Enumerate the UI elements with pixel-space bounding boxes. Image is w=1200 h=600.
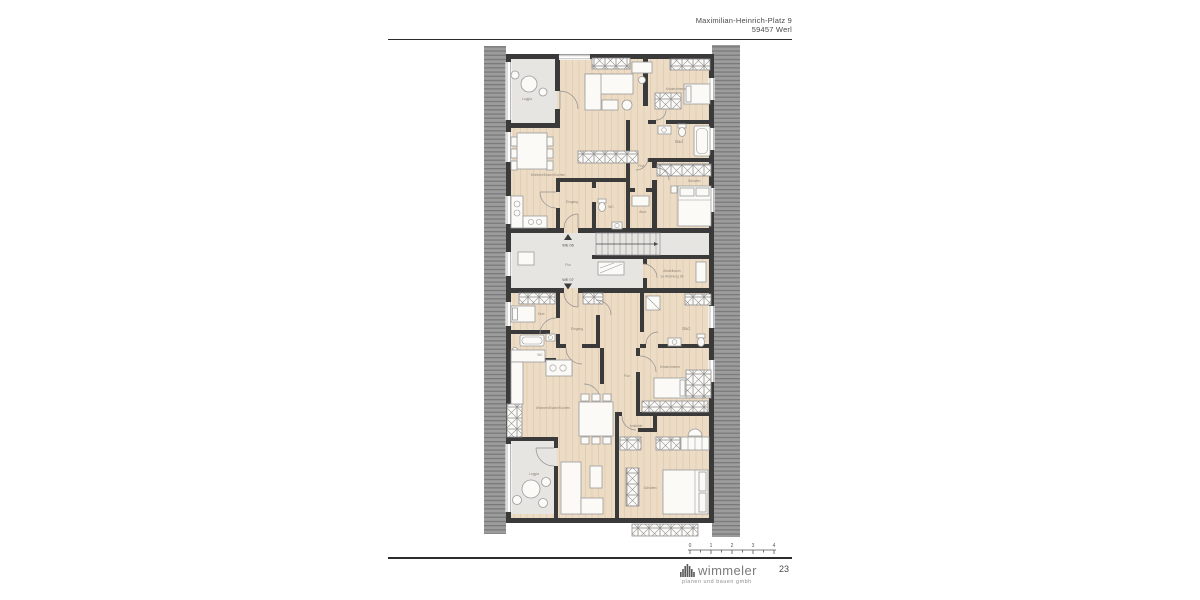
label-kinderzimmer-lower: Kinderzimmer [660, 365, 681, 369]
floorplan-drawing: Loggia Wohnen/Essen/Kochen Eingang WC Fl… [478, 40, 794, 556]
scale-tick-4: 4 [773, 543, 776, 549]
label-abstellraum-2: zu Wohnung 06 [660, 275, 683, 279]
label-bad-lower: Bad [682, 326, 690, 331]
staircase [596, 233, 660, 255]
label-ankleide-lower: Ankleide [630, 424, 643, 428]
label-abstellraum-1: Abstellraum [663, 269, 681, 273]
label-wohnen-lower: Wohnen/Essen/Kochen [536, 406, 571, 410]
label-schlafen-upper: Schlafen [688, 179, 701, 183]
wimmeler-bars-logo-icon [680, 562, 695, 577]
kinderzimmer-lower-furniture [654, 378, 686, 398]
label-loggia-upper: Loggia [522, 97, 532, 101]
brand-name: wimmeler [698, 564, 757, 577]
label-wohnen-upper: Wohnen/Essen/Kochen [531, 173, 566, 177]
label-schlafen-lower: Schlafen [644, 486, 657, 490]
roof-hatch-left [484, 46, 506, 534]
sheet-address: Maximilian-Heinrich-Platz 9 59457 Werl [696, 17, 792, 34]
kind-lower-furniture [511, 306, 535, 322]
loggia-upper-floor [511, 59, 557, 123]
abstellraum-shelf [696, 262, 706, 282]
hall-storage-item [598, 262, 624, 275]
dining-upper-furniture [511, 133, 553, 170]
scale-bar: 0 1 2 3 4 [688, 543, 776, 554]
scale-tick-2: 2 [731, 543, 734, 549]
address-line2: 59457 Werl [696, 26, 792, 35]
scale-tick-1: 1 [710, 543, 713, 549]
schlafen-lower-furniture [663, 470, 708, 514]
footer-rule [388, 557, 792, 559]
page-number: 23 [779, 564, 789, 574]
scale-tick-0: 0 [689, 543, 692, 549]
scale-tick-3: 3 [752, 543, 755, 549]
label-we07: WE 07 [562, 278, 573, 282]
label-flur-hall: Flur [565, 263, 572, 267]
label-kinderzimmer-upper: Kinderzimmer [666, 87, 687, 91]
label-wc-lower: WC [537, 353, 543, 357]
label-kind-lower: Kind [538, 312, 545, 316]
label-loggia-lower: Loggia [529, 472, 539, 476]
plan-sheet-page: Maximilian-Heinrich-Platz 9 59457 Werl [0, 0, 1200, 600]
label-eingang-upper: Eingang [566, 200, 578, 204]
label-flur-lower: Flur [624, 374, 631, 378]
label-flur-upper: Flur [638, 164, 645, 168]
living-upper-furniture [585, 74, 633, 110]
label-bad-upper: Bad [675, 139, 683, 144]
window-top-wall [559, 55, 590, 61]
label-wc-upper: WC [608, 205, 614, 209]
label-abst-upper: Abst. [639, 210, 647, 214]
roof-hatch-right [712, 45, 740, 537]
abst-shelf [632, 196, 649, 206]
label-we06: WE 06 [562, 244, 573, 248]
label-eingang-lower: Eingang [571, 327, 583, 331]
brand-subtitle: planen und bauen gmbh [682, 579, 800, 585]
